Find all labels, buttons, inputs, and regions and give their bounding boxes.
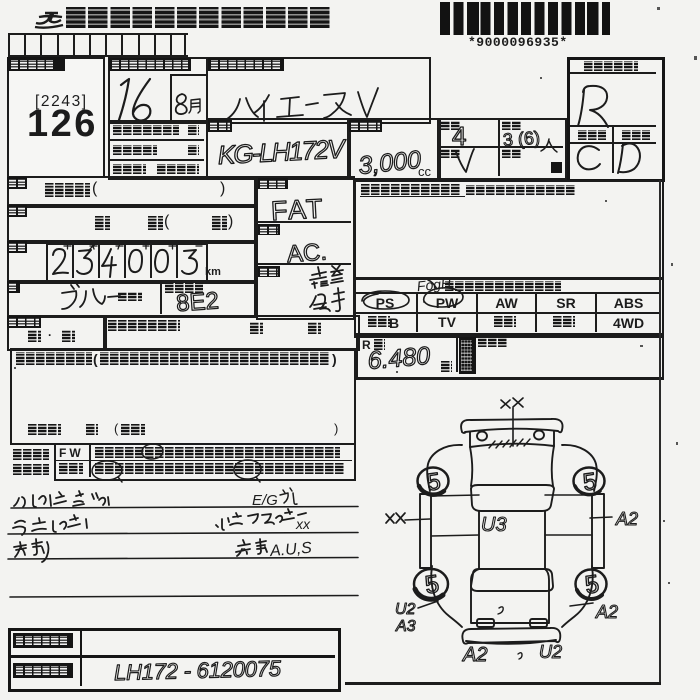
svg-text:E/G: E/G [252, 492, 278, 509]
svg-text:A2: A2 [595, 602, 618, 622]
svg-text:U2: U2 [539, 642, 562, 662]
svg-text:5: 5 [425, 468, 442, 497]
svg-text:A3: A3 [395, 618, 416, 635]
svg-text:6.480: 6.480 [366, 342, 431, 375]
svg-text:4: 4 [452, 121, 466, 151]
svg-text:U3: U3 [481, 514, 507, 536]
svg-text:5: 5 [583, 570, 601, 600]
svg-text:8E2: 8E2 [175, 287, 219, 317]
svg-text:AC.: AC. [286, 238, 328, 268]
svg-text:A2: A2 [615, 509, 638, 529]
svg-text:5: 5 [423, 570, 441, 600]
svg-text:cc: cc [418, 164, 432, 179]
svg-text:xx: xx [295, 516, 311, 532]
svg-text:3 (6): 3 (6) [502, 128, 540, 151]
svg-text:A2: A2 [462, 644, 487, 666]
svg-text:FAT: FAT [270, 193, 325, 226]
svg-text:U2: U2 [395, 601, 416, 618]
svg-text:KG-LH172V: KG-LH172V [217, 133, 348, 170]
svg-text:LH172 - 6120075: LH172 - 6120075 [114, 656, 283, 685]
svg-text:3,000: 3,000 [357, 146, 422, 180]
